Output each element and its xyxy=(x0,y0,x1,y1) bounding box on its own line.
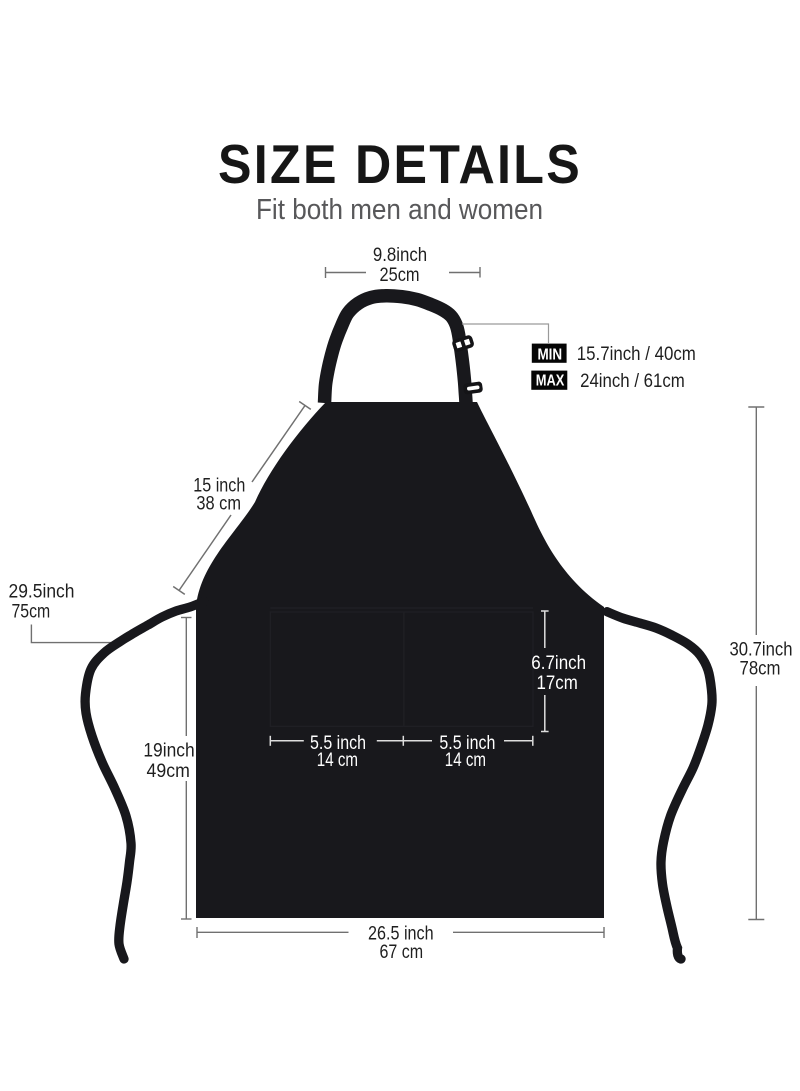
svg-text:MIN: MIN xyxy=(537,346,562,363)
svg-text:SIZE DETAILS: SIZE DETAILS xyxy=(218,133,582,195)
svg-text:MAX: MAX xyxy=(536,373,565,390)
svg-text:9.8inch: 9.8inch xyxy=(373,245,427,266)
svg-text:30.7inch: 30.7inch xyxy=(730,640,793,661)
svg-text:24inch / 61cm: 24inch / 61cm xyxy=(580,371,685,392)
svg-text:49cm: 49cm xyxy=(147,761,190,782)
svg-text:17cm: 17cm xyxy=(537,673,578,694)
svg-text:78cm: 78cm xyxy=(740,658,781,679)
svg-text:29.5inch: 29.5inch xyxy=(9,582,75,603)
svg-text:6.7inch: 6.7inch xyxy=(531,653,586,674)
svg-text:38 cm: 38 cm xyxy=(196,494,241,515)
svg-text:14 cm: 14 cm xyxy=(317,750,358,771)
svg-text:Fit both men and women: Fit both men and women xyxy=(256,194,543,226)
svg-text:19inch: 19inch xyxy=(143,741,194,762)
svg-text:15.7inch / 40cm: 15.7inch / 40cm xyxy=(577,344,696,365)
svg-text:67 cm: 67 cm xyxy=(379,942,423,963)
svg-text:25cm: 25cm xyxy=(380,265,420,286)
svg-text:14 cm: 14 cm xyxy=(445,750,486,771)
svg-text:75cm: 75cm xyxy=(12,602,51,623)
